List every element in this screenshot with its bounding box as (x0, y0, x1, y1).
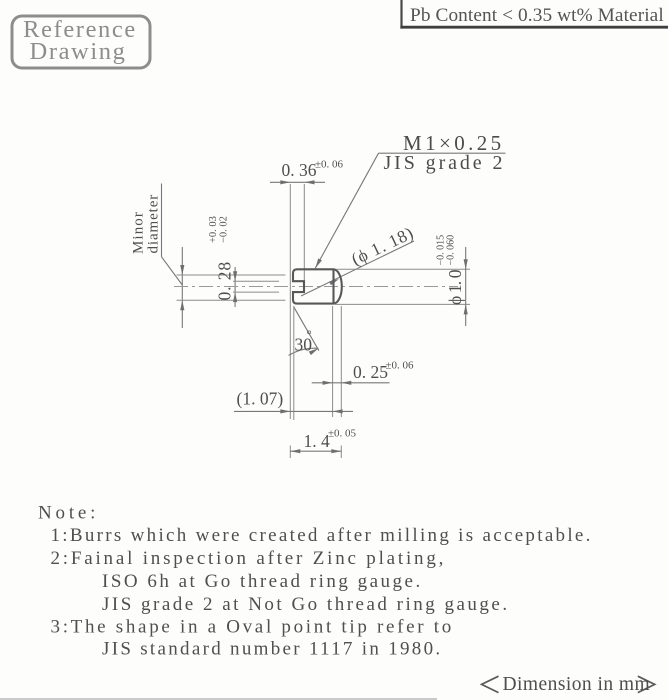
svg-text:0. 25: 0. 25 (353, 362, 388, 382)
svg-text:+0. 03: +0. 03 (208, 216, 219, 243)
svg-text:−0. 060: −0. 060 (446, 235, 457, 266)
svg-text:JIS grade 2: JIS grade 2 (384, 152, 506, 174)
svg-text:Minor: Minor (131, 211, 147, 254)
svg-text:Note:: Note: (38, 503, 99, 524)
svg-text:ϕ 1. 0: ϕ 1. 0 (445, 269, 465, 305)
svg-text:Dimension in mm: Dimension in mm (503, 674, 651, 695)
svg-text:ISO 6h at Go thread ring gauge: ISO 6h at Go thread ring gauge. (102, 571, 423, 592)
svg-text:°: ° (307, 327, 312, 342)
svg-text:diameter: diameter (146, 194, 162, 254)
svg-text:1. 4: 1. 4 (304, 431, 331, 451)
svg-text:Pb Content < 0.35 wt% Material: Pb Content < 0.35 wt% Material (410, 5, 664, 26)
svg-text:0. 36: 0. 36 (282, 160, 317, 180)
svg-text:(1. 07): (1. 07) (237, 389, 284, 409)
svg-text:±0. 06: ±0. 06 (315, 159, 344, 171)
svg-text:JIS grade 2 at Not Go thread r: JIS grade 2 at Not Go thread ring gauge. (102, 594, 510, 615)
svg-text:±0. 06: ±0. 06 (386, 360, 415, 372)
svg-text:JIS standard number 1117 in 19: JIS standard number 1117 in 1980. (102, 639, 442, 660)
svg-text:2:Fainal inspection after Zinc: 2:Fainal inspection after Zinc plating, (51, 548, 447, 569)
svg-text:1:Burrs which were created aft: 1:Burrs which were created after milling… (51, 525, 593, 546)
svg-text:Drawing: Drawing (30, 38, 127, 65)
svg-text:0. 28: 0. 28 (215, 261, 235, 301)
svg-text:(ϕ 1. 18): (ϕ 1. 18) (348, 222, 417, 269)
svg-text:−0. 02: −0. 02 (219, 216, 230, 243)
svg-text:±0. 05: ±0. 05 (328, 428, 357, 440)
svg-text:3:The shape in a Oval point ti: 3:The shape in a Oval point tip refer to (51, 617, 454, 638)
